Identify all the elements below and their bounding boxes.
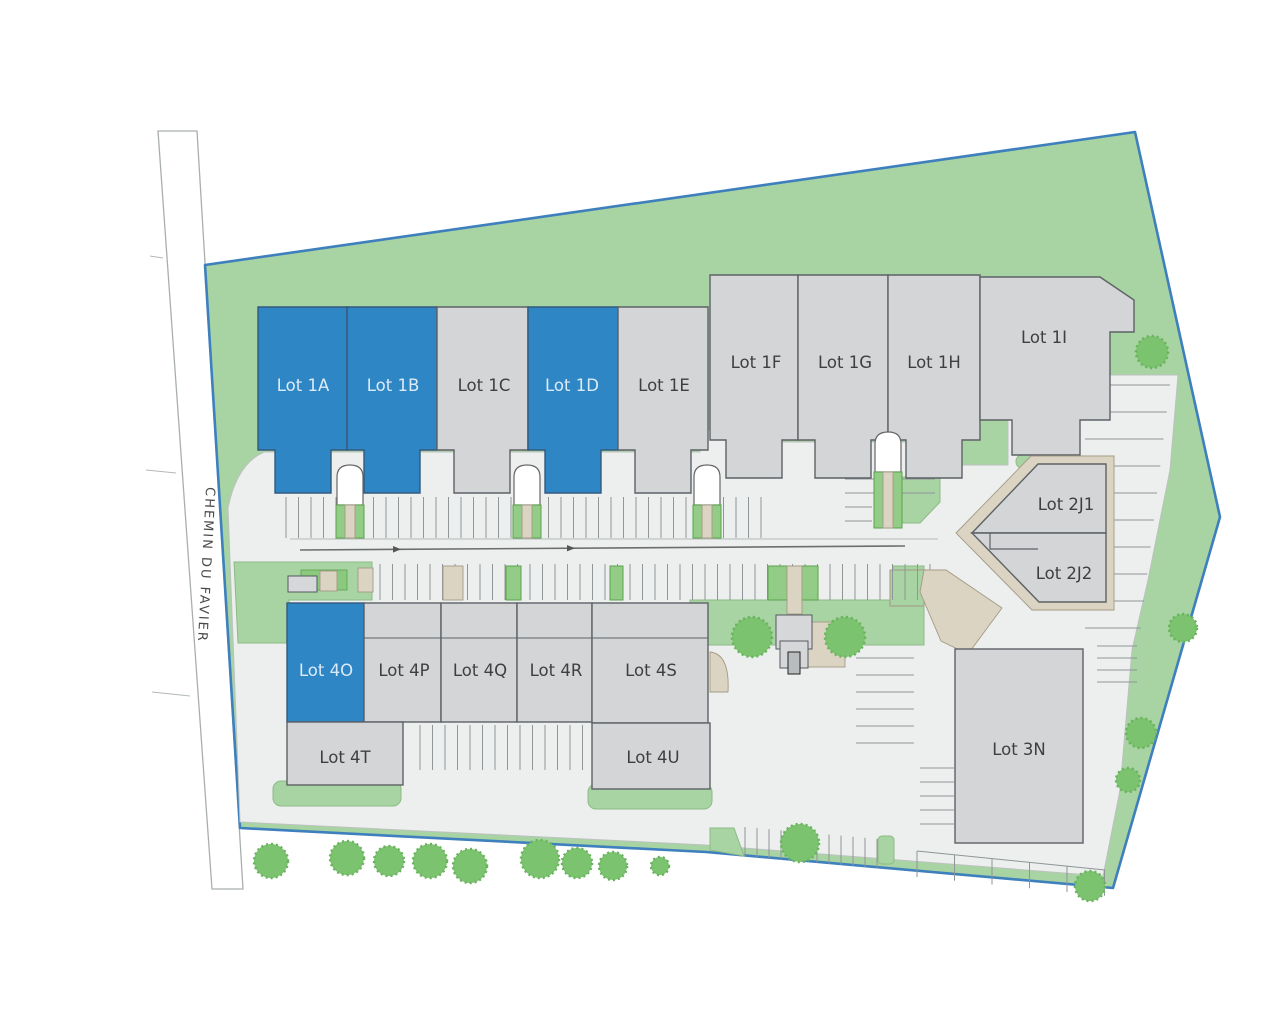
tree-icon xyxy=(1136,336,1168,368)
lot-1h-label: Lot 1H xyxy=(907,353,961,372)
tree-icon xyxy=(374,846,404,876)
lot-1g-label: Lot 1G xyxy=(818,353,872,372)
lot-1b-label: Lot 1B xyxy=(367,376,420,395)
tree-icon xyxy=(330,841,364,875)
tree-icon xyxy=(1075,871,1105,901)
tree-icon xyxy=(562,848,592,878)
tree-icon xyxy=(1169,614,1197,642)
tree-icon xyxy=(651,857,669,875)
lot-3n-label: Lot 3N xyxy=(992,740,1046,759)
lot-1a-label: Lot 1A xyxy=(277,376,330,395)
lot-2j2-label: Lot 2J2 xyxy=(1036,564,1093,583)
tree-icon xyxy=(732,617,772,657)
lot-4q-label: Lot 4Q xyxy=(453,661,507,680)
tree-icon xyxy=(781,824,819,862)
tree-icon xyxy=(521,840,559,878)
lot-4o-label: Lot 4O xyxy=(299,661,353,680)
tree-icon xyxy=(1116,768,1140,792)
tree-icon xyxy=(825,617,865,657)
lot-2j1-label: Lot 2J1 xyxy=(1038,495,1095,514)
lot-1d-label: Lot 1D xyxy=(545,376,599,395)
lot-4u-label: Lot 4U xyxy=(626,748,679,767)
lot-4t-label: Lot 4T xyxy=(319,748,371,767)
tree-icon xyxy=(453,849,487,883)
lot-1i-label: Lot 1I xyxy=(1021,328,1067,347)
tree-icon xyxy=(1126,718,1156,748)
lot-1c-label: Lot 1C xyxy=(458,376,511,395)
lot-4p-label: Lot 4P xyxy=(378,661,429,680)
tree-icon xyxy=(254,844,288,878)
lot-4r-label: Lot 4R xyxy=(530,661,583,680)
lot-1f-label: Lot 1F xyxy=(731,353,782,372)
lot-4s-label: Lot 4S xyxy=(625,661,677,680)
lot-1e-label: Lot 1E xyxy=(638,376,690,395)
tree-icon xyxy=(413,844,447,878)
tree-icon xyxy=(599,852,627,880)
site-plan-canvas: { "road_label": "CHEMIN DU FAVIER", "lot… xyxy=(0,0,1280,1028)
